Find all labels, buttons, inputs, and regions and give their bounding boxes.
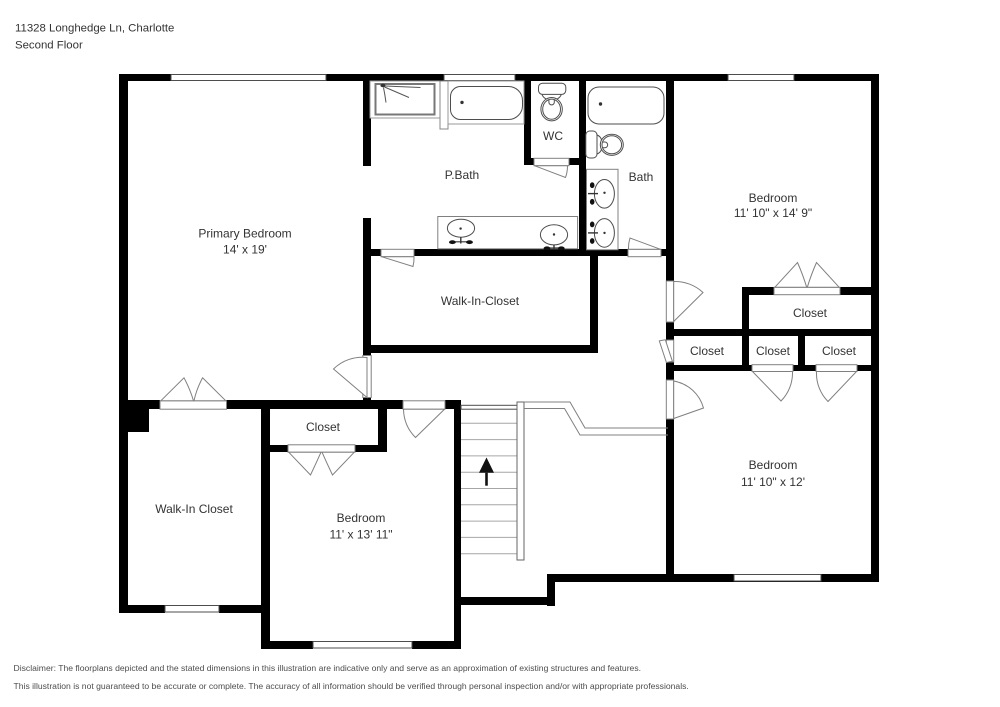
svg-text:11' x 13' 11": 11' x 13' 11"	[329, 528, 392, 542]
svg-text:Disclaimer: The floorplans dep: Disclaimer: The floorplans depicted and …	[14, 663, 642, 673]
svg-text:Bedroom: Bedroom	[749, 191, 798, 205]
svg-text:Closet: Closet	[306, 420, 341, 434]
svg-text:Closet: Closet	[793, 306, 828, 320]
svg-text:Closet: Closet	[756, 344, 791, 358]
svg-text:Closet: Closet	[690, 344, 725, 358]
svg-text:14' x 19': 14' x 19'	[223, 243, 267, 257]
svg-text:P.Bath: P.Bath	[445, 168, 479, 182]
svg-text:WC: WC	[543, 129, 563, 143]
svg-text:Walk-In Closet: Walk-In Closet	[155, 502, 233, 516]
svg-text:11328 Longhedge Ln, Charlotte: 11328 Longhedge Ln, Charlotte	[15, 23, 174, 35]
svg-text:11' 10" x 14' 9": 11' 10" x 14' 9"	[734, 206, 812, 220]
svg-text:Bedroom: Bedroom	[337, 511, 386, 525]
svg-text:Walk-In-Closet: Walk-In-Closet	[441, 294, 520, 308]
svg-text:11' 10" x 12': 11' 10" x 12'	[741, 475, 805, 489]
svg-text:Bath: Bath	[629, 170, 654, 184]
svg-text:Second Floor: Second Floor	[15, 40, 83, 52]
svg-text:This illustration is not guara: This illustration is not guaranteed to b…	[14, 681, 689, 691]
svg-text:Bedroom: Bedroom	[749, 458, 798, 472]
svg-text:Primary Bedroom: Primary Bedroom	[198, 227, 291, 241]
svg-text:Closet: Closet	[822, 344, 857, 358]
